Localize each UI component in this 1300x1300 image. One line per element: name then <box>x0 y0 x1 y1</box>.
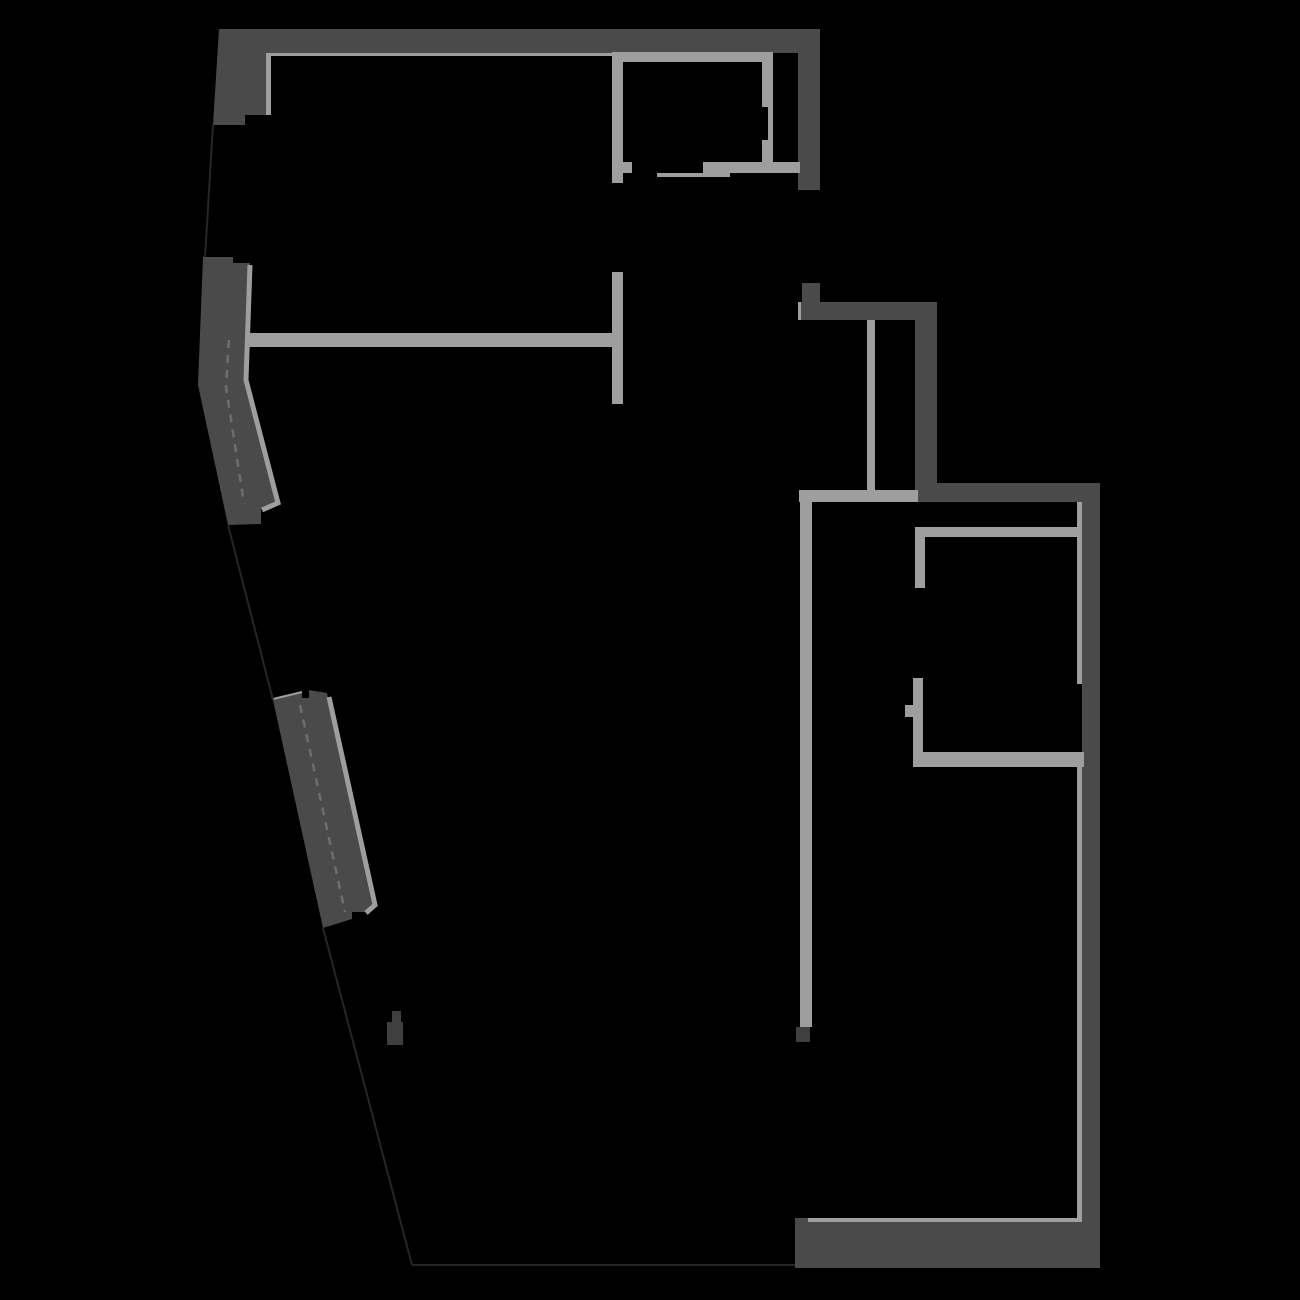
stair-east-wall <box>915 320 937 483</box>
kitchen-wall-end-cap <box>796 1027 810 1042</box>
closet-left-door-jamb <box>623 162 632 173</box>
north-wall-inner-face <box>266 53 612 56</box>
bathroom-top-wall <box>915 527 1082 537</box>
east-outer-wall <box>1082 483 1100 1268</box>
floorplan <box>0 0 1300 1300</box>
stair-north-wall <box>799 302 937 320</box>
closet-top-wall <box>612 52 773 62</box>
stair-wall-tick <box>798 302 801 320</box>
east-wall-inner-face-lower <box>1077 767 1082 1218</box>
bedroom-divider-wall <box>247 333 612 347</box>
boundary-left-upper <box>205 125 213 257</box>
floorplan-svg <box>0 0 1300 1300</box>
hall-south-wall <box>915 483 1100 502</box>
closet-left-wall <box>612 52 623 183</box>
boundary-left-middle <box>228 525 273 700</box>
bedroom-divider-return <box>612 272 623 404</box>
stair-rail-wall <box>867 320 875 490</box>
east-wall-inner-face-upper <box>1077 502 1082 684</box>
bathroom-door-jamb <box>905 705 913 717</box>
bathroom-bottom-wall <box>913 752 1084 767</box>
closet-door-threshold <box>657 173 730 177</box>
closet-right-wall-recess <box>762 107 768 140</box>
hall-divider-wall <box>799 490 918 502</box>
utility-mark <box>387 1011 403 1045</box>
kitchen-wall <box>800 492 812 1027</box>
south-outer-wall <box>795 1218 1100 1268</box>
north-outer-wall <box>266 29 798 53</box>
stair-north-stub <box>802 283 820 302</box>
facade-upper-segment <box>213 29 266 125</box>
facade-middle-segment <box>198 257 277 525</box>
entry-east-wall <box>798 29 820 190</box>
south-wall-inner-face <box>808 1218 1082 1222</box>
boundary-left-lower <box>323 928 412 1265</box>
closet-bottom-wall <box>703 162 800 173</box>
bathroom-left-wall-upper <box>915 527 925 588</box>
corner-inner-face <box>266 53 271 115</box>
